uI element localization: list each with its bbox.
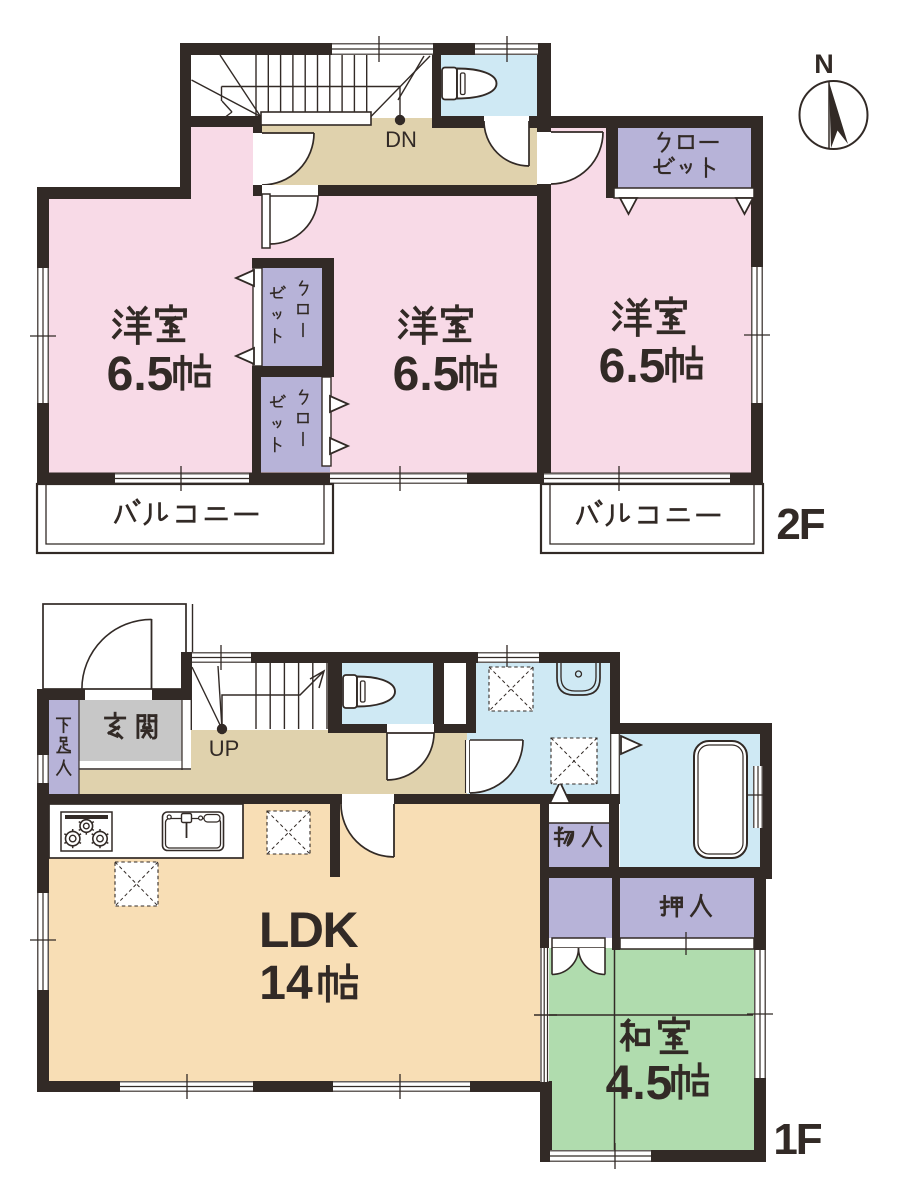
svg-text:14: 14: [259, 957, 313, 1010]
svg-text:LDK: LDK: [259, 902, 359, 958]
svg-text:6.5: 6.5: [393, 348, 460, 401]
svg-text:DN: DN: [385, 127, 417, 152]
svg-text:N: N: [814, 49, 834, 79]
svg-text:6.5: 6.5: [599, 340, 666, 393]
svg-text:6.5: 6.5: [107, 348, 174, 401]
svg-text:1F: 1F: [773, 1115, 821, 1164]
svg-text:2F: 2F: [776, 500, 824, 549]
svg-text:UP: UP: [209, 736, 240, 761]
svg-text:4.5: 4.5: [606, 1057, 673, 1110]
